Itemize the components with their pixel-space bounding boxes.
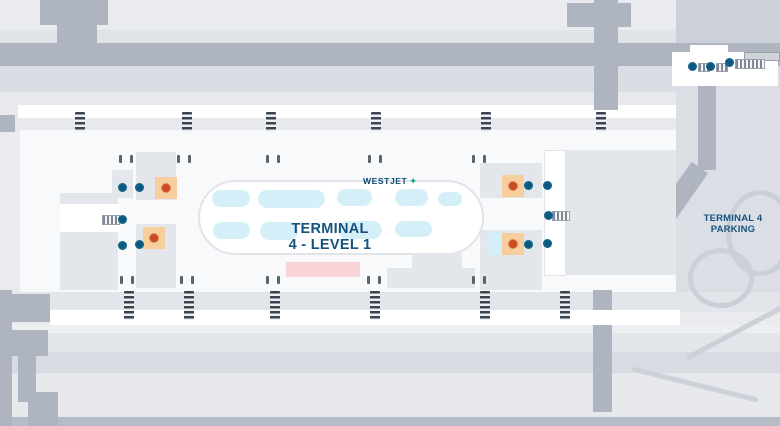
escalator-icon[interactable] (552, 211, 570, 221)
baggage-carousel (213, 222, 250, 239)
crosswalk (596, 112, 606, 132)
info-point-icon[interactable] (155, 177, 177, 199)
crosswalk (481, 112, 491, 132)
westjet-logo: WESTJET ✦ (363, 176, 417, 186)
crosswalk (370, 291, 380, 320)
baggage-carousel (337, 189, 372, 206)
baggage-carousel (395, 189, 428, 206)
door-tick (131, 276, 134, 284)
road-bottomleft-block3 (28, 392, 58, 426)
westjet-leaf-icon: ✦ (409, 177, 417, 186)
terminal-title: TERMINAL 4 - LEVEL 1 (262, 222, 398, 253)
elevator-icon[interactable] (524, 240, 533, 249)
westjet-wordmark: WESTJET (363, 176, 407, 186)
info-point-icon[interactable] (143, 227, 165, 249)
crosswalk (124, 291, 134, 320)
crosswalk (182, 112, 192, 132)
door-tick (368, 155, 371, 163)
elevator-icon[interactable] (118, 183, 127, 192)
elevator-icon[interactable] (544, 211, 553, 220)
transit-building-bump (690, 45, 728, 53)
elevator-icon[interactable] (135, 240, 144, 249)
band-lower-2 (0, 333, 780, 352)
elevator-icon[interactable] (706, 62, 715, 71)
crosswalk (480, 291, 490, 320)
door-tick (180, 276, 183, 284)
road-vertical-bottomcenter (593, 290, 612, 412)
info-point-icon[interactable] (502, 175, 524, 197)
road-vertical-topleft-cap (40, 0, 108, 25)
baggage-carousel (438, 192, 462, 206)
crosswalk (371, 112, 381, 132)
crosswalk (75, 112, 85, 132)
elevator-icon[interactable] (688, 62, 697, 71)
door-tick (191, 276, 194, 284)
door-tick (472, 276, 475, 284)
crosswalk (266, 112, 276, 132)
band-lower-sidewalk (0, 292, 780, 312)
band-upper-light (0, 30, 780, 43)
elevator-icon[interactable] (725, 58, 734, 67)
parking-label: TERMINAL 4 PARKING (694, 213, 772, 235)
elevator-icon[interactable] (524, 181, 533, 190)
elevator-icon[interactable] (118, 215, 127, 224)
band-lower-3 (0, 373, 780, 417)
info-point-icon[interactable] (502, 233, 524, 255)
baggage-carousel (395, 221, 432, 237)
crosswalk (184, 291, 194, 320)
door-tick (130, 155, 133, 163)
door-tick (277, 276, 280, 284)
band-lower-1 (0, 325, 780, 333)
baggage-carousel (258, 190, 325, 208)
parking-label-line2: PARKING (694, 224, 772, 235)
door-tick (266, 155, 269, 163)
road-bottom-edge (0, 417, 780, 426)
parking-loop-road-small (688, 248, 754, 308)
road-lower-horizontal (0, 352, 780, 373)
road-vertical-topcenter-cap (567, 3, 631, 27)
door-tick (266, 276, 269, 284)
road-arrivals-lower (50, 310, 680, 325)
parking-label-line1: TERMINAL 4 (694, 213, 772, 224)
door-tick (120, 276, 123, 284)
elevator-icon[interactable] (543, 181, 552, 190)
terminal-title-line2: 4 - LEVEL 1 (262, 238, 398, 254)
door-tick (378, 276, 381, 284)
elevator-icon[interactable] (118, 241, 127, 250)
door-tick (188, 155, 191, 163)
door-tick (472, 155, 475, 163)
crosswalk (270, 291, 280, 320)
baggage-carousel (212, 190, 250, 207)
road-vertical-transit (698, 85, 716, 170)
door-tick (277, 155, 280, 163)
parking-zone-top-corner (676, 0, 780, 43)
road-bottomleft-block1 (4, 294, 50, 322)
highlight-pink-zone (286, 262, 360, 277)
door-tick (119, 155, 122, 163)
road-arrivals-upper (18, 105, 676, 118)
door-tick (483, 155, 486, 163)
elevator-icon[interactable] (135, 183, 144, 192)
plaza-right (563, 150, 676, 275)
building-south-step2 (387, 268, 475, 288)
elevator-icon[interactable] (543, 239, 552, 248)
road-top-horizontal (0, 43, 780, 66)
door-tick (177, 155, 180, 163)
escalator-icon[interactable] (735, 59, 765, 69)
terminal-title-line1: TERMINAL (262, 222, 398, 238)
door-tick (483, 276, 486, 284)
airport-terminal-map: WESTJET ✦ TERMINAL 4 - LEVEL 1 TERMINAL … (0, 0, 780, 426)
crosswalk (560, 291, 570, 320)
door-tick (367, 276, 370, 284)
band-upper-mid (0, 66, 780, 92)
door-tick (379, 155, 382, 163)
road-stub-left-edge (0, 115, 15, 132)
